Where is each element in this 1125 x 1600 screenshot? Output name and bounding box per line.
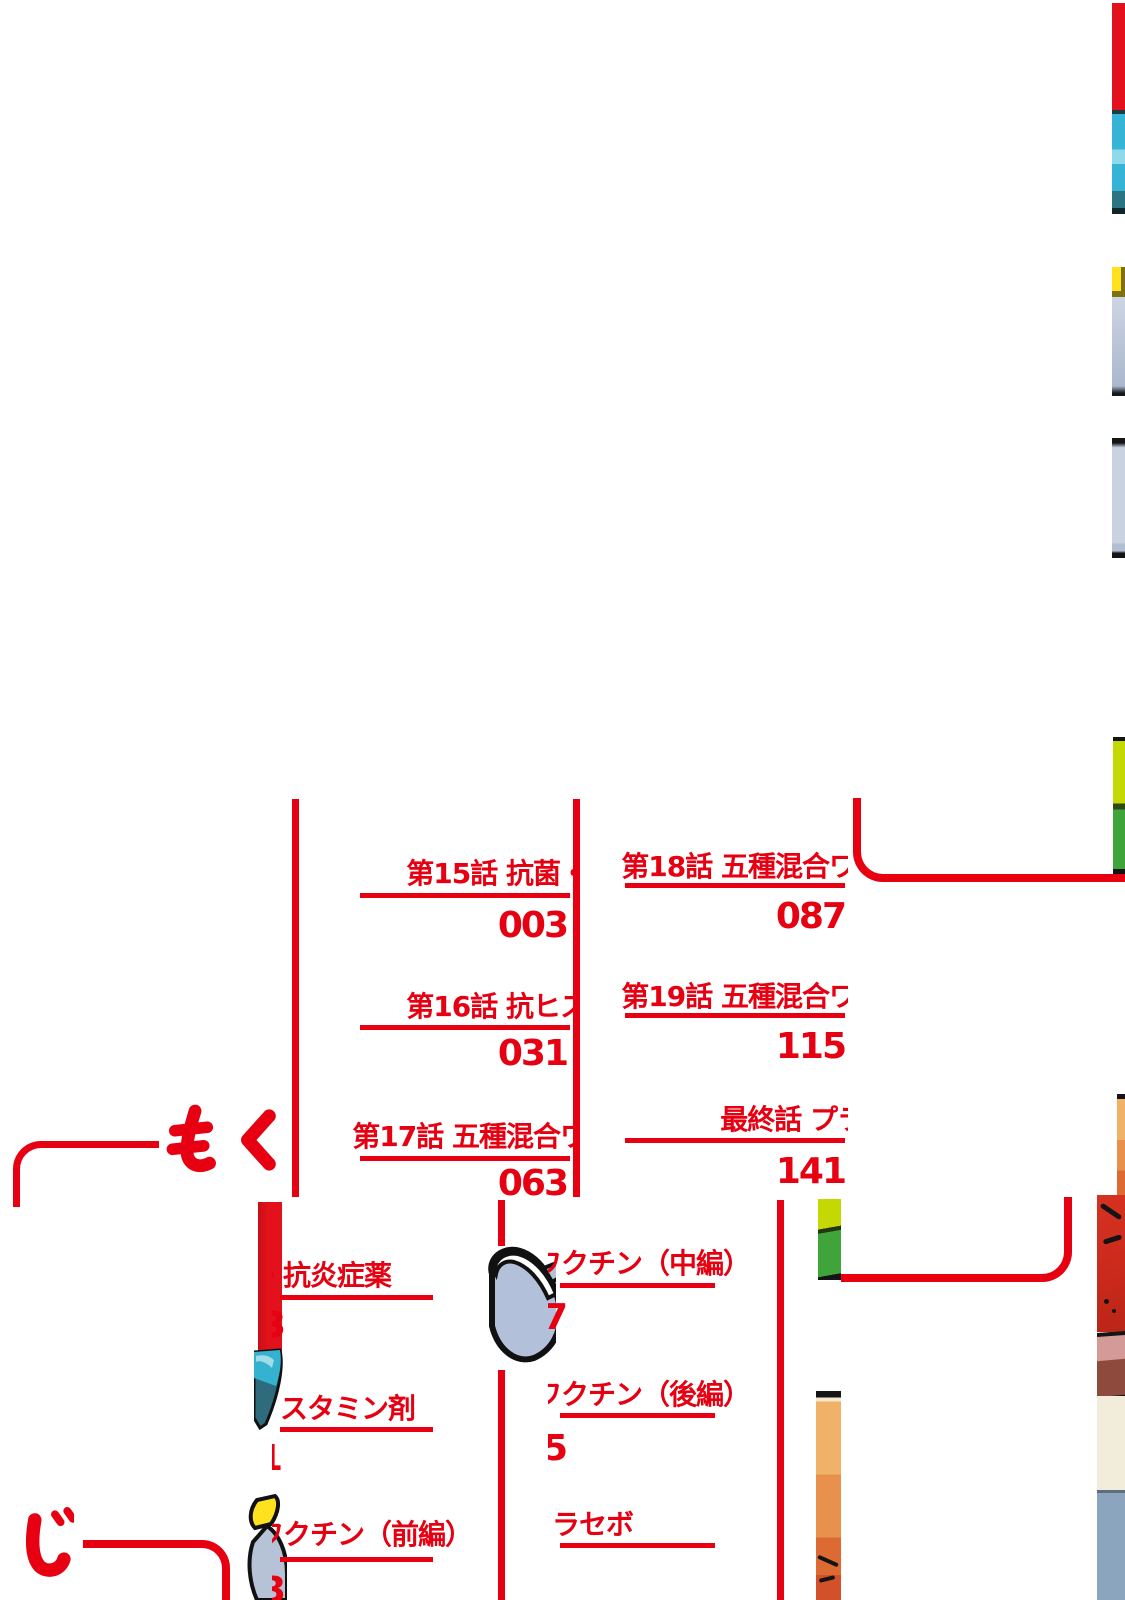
heading-label: もくじ: [0, 0, 1, 1]
toc-entry-page: 003: [498, 908, 567, 944]
jacket-cream-band: [1097, 1396, 1125, 1490]
toc-entry-title-continued: ・抗炎症薬: [272, 1261, 391, 1291]
heading-mokuji-mo: [162, 1104, 220, 1176]
toc-entry-title: 最終話 プラ: [720, 1105, 848, 1135]
bottom-art-orange-bar: [816, 1391, 841, 1600]
toc-entry-rule: [280, 1557, 433, 1562]
heading-mokuji-ji: [18, 1506, 74, 1582]
toc-entry-title-continued: ワクチン（前編）: [272, 1520, 472, 1550]
jacket-maroon-band: [1097, 1359, 1125, 1401]
toc-entry-rule: [360, 893, 570, 898]
jacket-slate-band: [1097, 1490, 1125, 1600]
edge-art-jacket: [1097, 1195, 1125, 1600]
toc-entry-title-continued: ワクチン（後編）: [548, 1380, 750, 1410]
toc-entry-page-fragment: 5: [548, 1431, 566, 1467]
edge-art-gray-2: [1112, 438, 1125, 558]
toc-column-right: 第18話 五種混合ワ 087 第19話 五種混合ワ 115 最終話 プラ 141: [578, 799, 848, 1197]
edge-art-orange: [1117, 1094, 1125, 1196]
toc-entry-title-continued: スタミン剤: [280, 1394, 415, 1424]
toc-entry-rule: [280, 1427, 433, 1432]
toc-entry-rule: [560, 1543, 715, 1548]
toc-entry-title: 第15話 抗菌・: [406, 859, 573, 889]
edge-art-cyan: [1112, 110, 1125, 214]
toc-entry-title-continued: ラセボ: [552, 1510, 633, 1540]
toc-entry-page: 115: [776, 1029, 845, 1065]
toc-column-left: 第15話 抗菌・ 003 第16話 抗ヒス 031 第17話 五種混合ワ 063: [299, 799, 573, 1197]
toc-entry-page-fragment: 3: [272, 1573, 284, 1600]
toc-entry-title: 第16話 抗ヒス: [406, 992, 573, 1022]
toc-entry-page-fragment: 1: [272, 1441, 281, 1477]
toc-entry-page: 087: [776, 899, 845, 935]
bottom-divider-2: [777, 1200, 784, 1600]
toc-bottom-column-2: ワクチン（中編） 7 ワクチン（後編） 5 ラセボ: [548, 1197, 777, 1600]
bracket-heading-left: [13, 1141, 159, 1207]
bottom-art-green-bar: [818, 1199, 841, 1280]
column-divider-left: [292, 799, 299, 1197]
edge-art-red: [1112, 3, 1125, 113]
orange-bar-ink-mark: [819, 1575, 835, 1583]
toc-entry-page: 063: [498, 1166, 567, 1197]
toc-entry-page: 141: [776, 1154, 845, 1190]
bracket-bottom-right: [841, 1197, 1072, 1282]
toc-entry-rule: [625, 1013, 845, 1018]
edge-art-yellow: [1112, 267, 1125, 301]
toc-entry-title-continued: ワクチン（中編）: [548, 1249, 750, 1279]
toc-entry-page-fragment: 7: [548, 1300, 566, 1336]
toc-entry-rule: [625, 883, 845, 888]
jacket-ink-mark: [1112, 1309, 1116, 1313]
bracket-heading-ji: [83, 1540, 230, 1600]
toc-page: 第15話 抗菌・ 003 第16話 抗ヒス 031 第17話 五種混合ワ 063…: [0, 0, 1125, 1600]
toc-entry-title: 第19話 五種混合ワ: [621, 982, 848, 1012]
orange-bar-ink-mark: [817, 1555, 839, 1568]
jacket-ink-mark: [1104, 1299, 1109, 1304]
toc-entry-rule: [360, 1025, 570, 1030]
bracket-top-right: [853, 798, 1125, 882]
toc-bottom-column-1: ・抗炎症薬 3 スタミン剤 1 ワクチン（前編） 3: [272, 1197, 498, 1600]
toc-entry-rule: [360, 1156, 570, 1161]
toc-entry-rule: [560, 1283, 715, 1288]
toc-entry-rule: [560, 1413, 715, 1418]
toc-entry-rule: [280, 1295, 433, 1300]
toc-entry-title: 第17話 五種混合ワ: [352, 1122, 573, 1152]
toc-entry-page-fragment: 3: [272, 1308, 284, 1344]
toc-entry-title: 第18話 五種混合ワ: [621, 852, 848, 882]
edge-art-gray-1: [1112, 297, 1125, 396]
heading-mokuji-ku: [238, 1108, 280, 1172]
toc-entry-rule: [625, 1138, 845, 1143]
toc-entry-page: 031: [498, 1036, 567, 1072]
